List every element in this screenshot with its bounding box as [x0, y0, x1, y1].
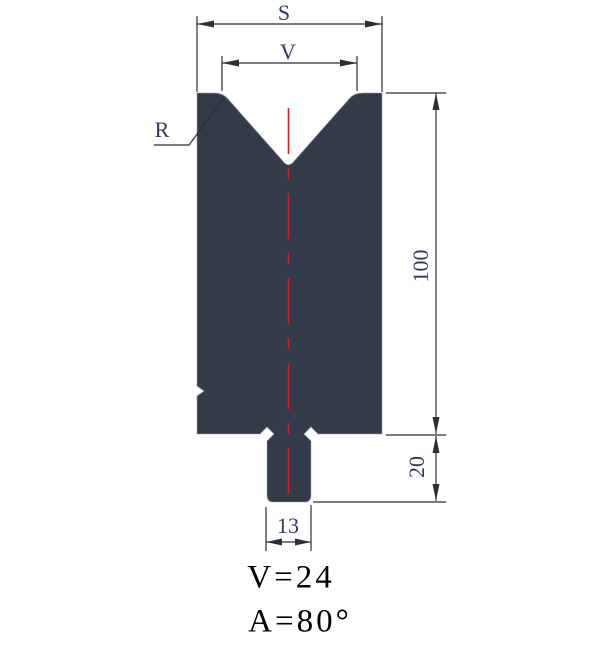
v-arrow-right: [340, 60, 357, 67]
s-arrow-right: [365, 21, 382, 28]
tang-width-arrow-left: [266, 539, 282, 546]
die-body-shape: [197, 93, 382, 502]
v-arrow-left: [222, 60, 239, 67]
tang-height-label: 20: [406, 456, 428, 478]
tang-height-arrow-down: [433, 484, 440, 501]
total-width-label: S: [278, 2, 290, 24]
height-arrow-down: [433, 417, 440, 434]
die-drawing-svg: [0, 0, 600, 650]
tang-width-arrow-right: [295, 539, 311, 546]
vee-opening-label: V: [280, 41, 296, 63]
die-drawing-canvas: S V R 100 20 13 V=24 A=80°: [0, 0, 600, 650]
body-height-label: 100: [410, 250, 432, 283]
s-arrow-left: [197, 21, 214, 28]
vee-size-spec: V=24: [247, 562, 334, 595]
height-arrow-up: [433, 93, 440, 110]
tang-width-label: 13: [277, 515, 299, 537]
corner-radius-label: R: [155, 119, 170, 141]
tang-height-arrow-up: [433, 436, 440, 453]
vee-angle-spec: A=80°: [248, 606, 352, 639]
